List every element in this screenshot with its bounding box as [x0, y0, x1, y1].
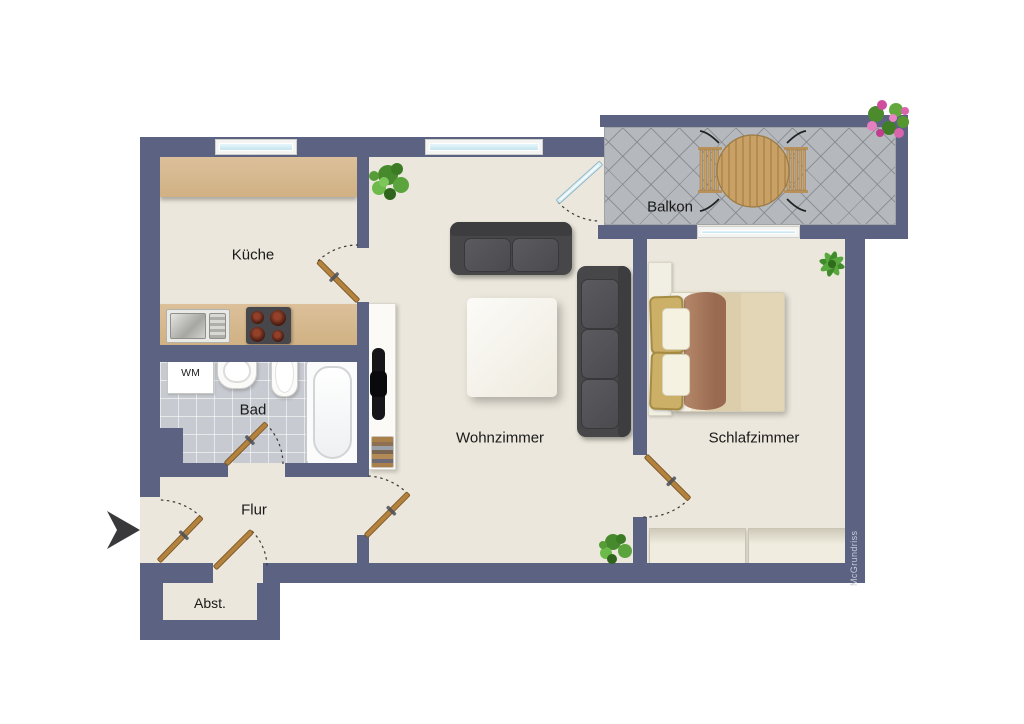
sink-basin	[170, 313, 206, 339]
livingroom-window	[425, 139, 543, 155]
label-wohnzimmer: Wohnzimmer	[456, 430, 544, 447]
wall	[600, 115, 908, 127]
wall	[263, 563, 865, 583]
wall	[357, 157, 369, 248]
wall	[896, 115, 908, 239]
burner	[272, 330, 284, 342]
window-glass	[701, 230, 796, 234]
window-glass	[219, 143, 293, 151]
wall	[598, 225, 697, 239]
sofa-cushion	[512, 238, 559, 272]
wall	[800, 225, 908, 239]
label-flur: Flur	[241, 502, 267, 519]
wardrobe-unit	[649, 528, 746, 564]
wall	[257, 583, 280, 628]
label-kueche: Küche	[232, 247, 275, 264]
window-glass	[429, 143, 539, 151]
book-stack	[371, 436, 394, 468]
kitchen-sink	[166, 309, 230, 343]
bedroom-window	[697, 226, 800, 238]
wall	[183, 463, 228, 477]
bed-pillow-inner	[662, 354, 690, 396]
sofa-cushion	[581, 279, 619, 329]
sofa-cushion	[464, 238, 511, 272]
stove	[246, 307, 291, 344]
label-balkon: Balkon	[647, 199, 693, 216]
wall	[357, 302, 369, 473]
label-abstellraum: Abst.	[194, 595, 226, 611]
burner	[250, 327, 265, 342]
tv	[372, 348, 385, 420]
wall	[140, 428, 183, 477]
entrance-doorway-floor	[140, 497, 160, 563]
floor-plan: WM	[0, 0, 1024, 724]
sofa-cushion	[581, 379, 619, 429]
entrance-arrow-icon	[107, 511, 140, 549]
label-bad: Bad	[240, 402, 267, 419]
wardrobe-unit	[748, 528, 849, 564]
wall	[140, 345, 369, 362]
coffee-table	[467, 298, 557, 397]
storage-doorway-floor	[213, 563, 263, 583]
bed-blanket	[684, 292, 726, 410]
burner	[251, 311, 264, 324]
sofa-2-seat	[450, 222, 572, 275]
wall	[285, 463, 369, 477]
burner	[270, 310, 286, 326]
label-schlafzimmer: Schlafzimmer	[709, 430, 800, 447]
watermark: McGrundriss	[849, 531, 859, 586]
sofa-3-seat	[577, 266, 631, 437]
wall	[633, 517, 647, 563]
bathtub	[306, 358, 359, 467]
bed-pillow-inner	[662, 308, 690, 350]
wall	[357, 535, 369, 563]
kitchen-window	[215, 139, 297, 155]
kitchen-counter-top	[160, 157, 357, 197]
sofa-cushion	[581, 329, 619, 379]
sink-drainer	[209, 313, 226, 339]
wall	[633, 239, 647, 455]
